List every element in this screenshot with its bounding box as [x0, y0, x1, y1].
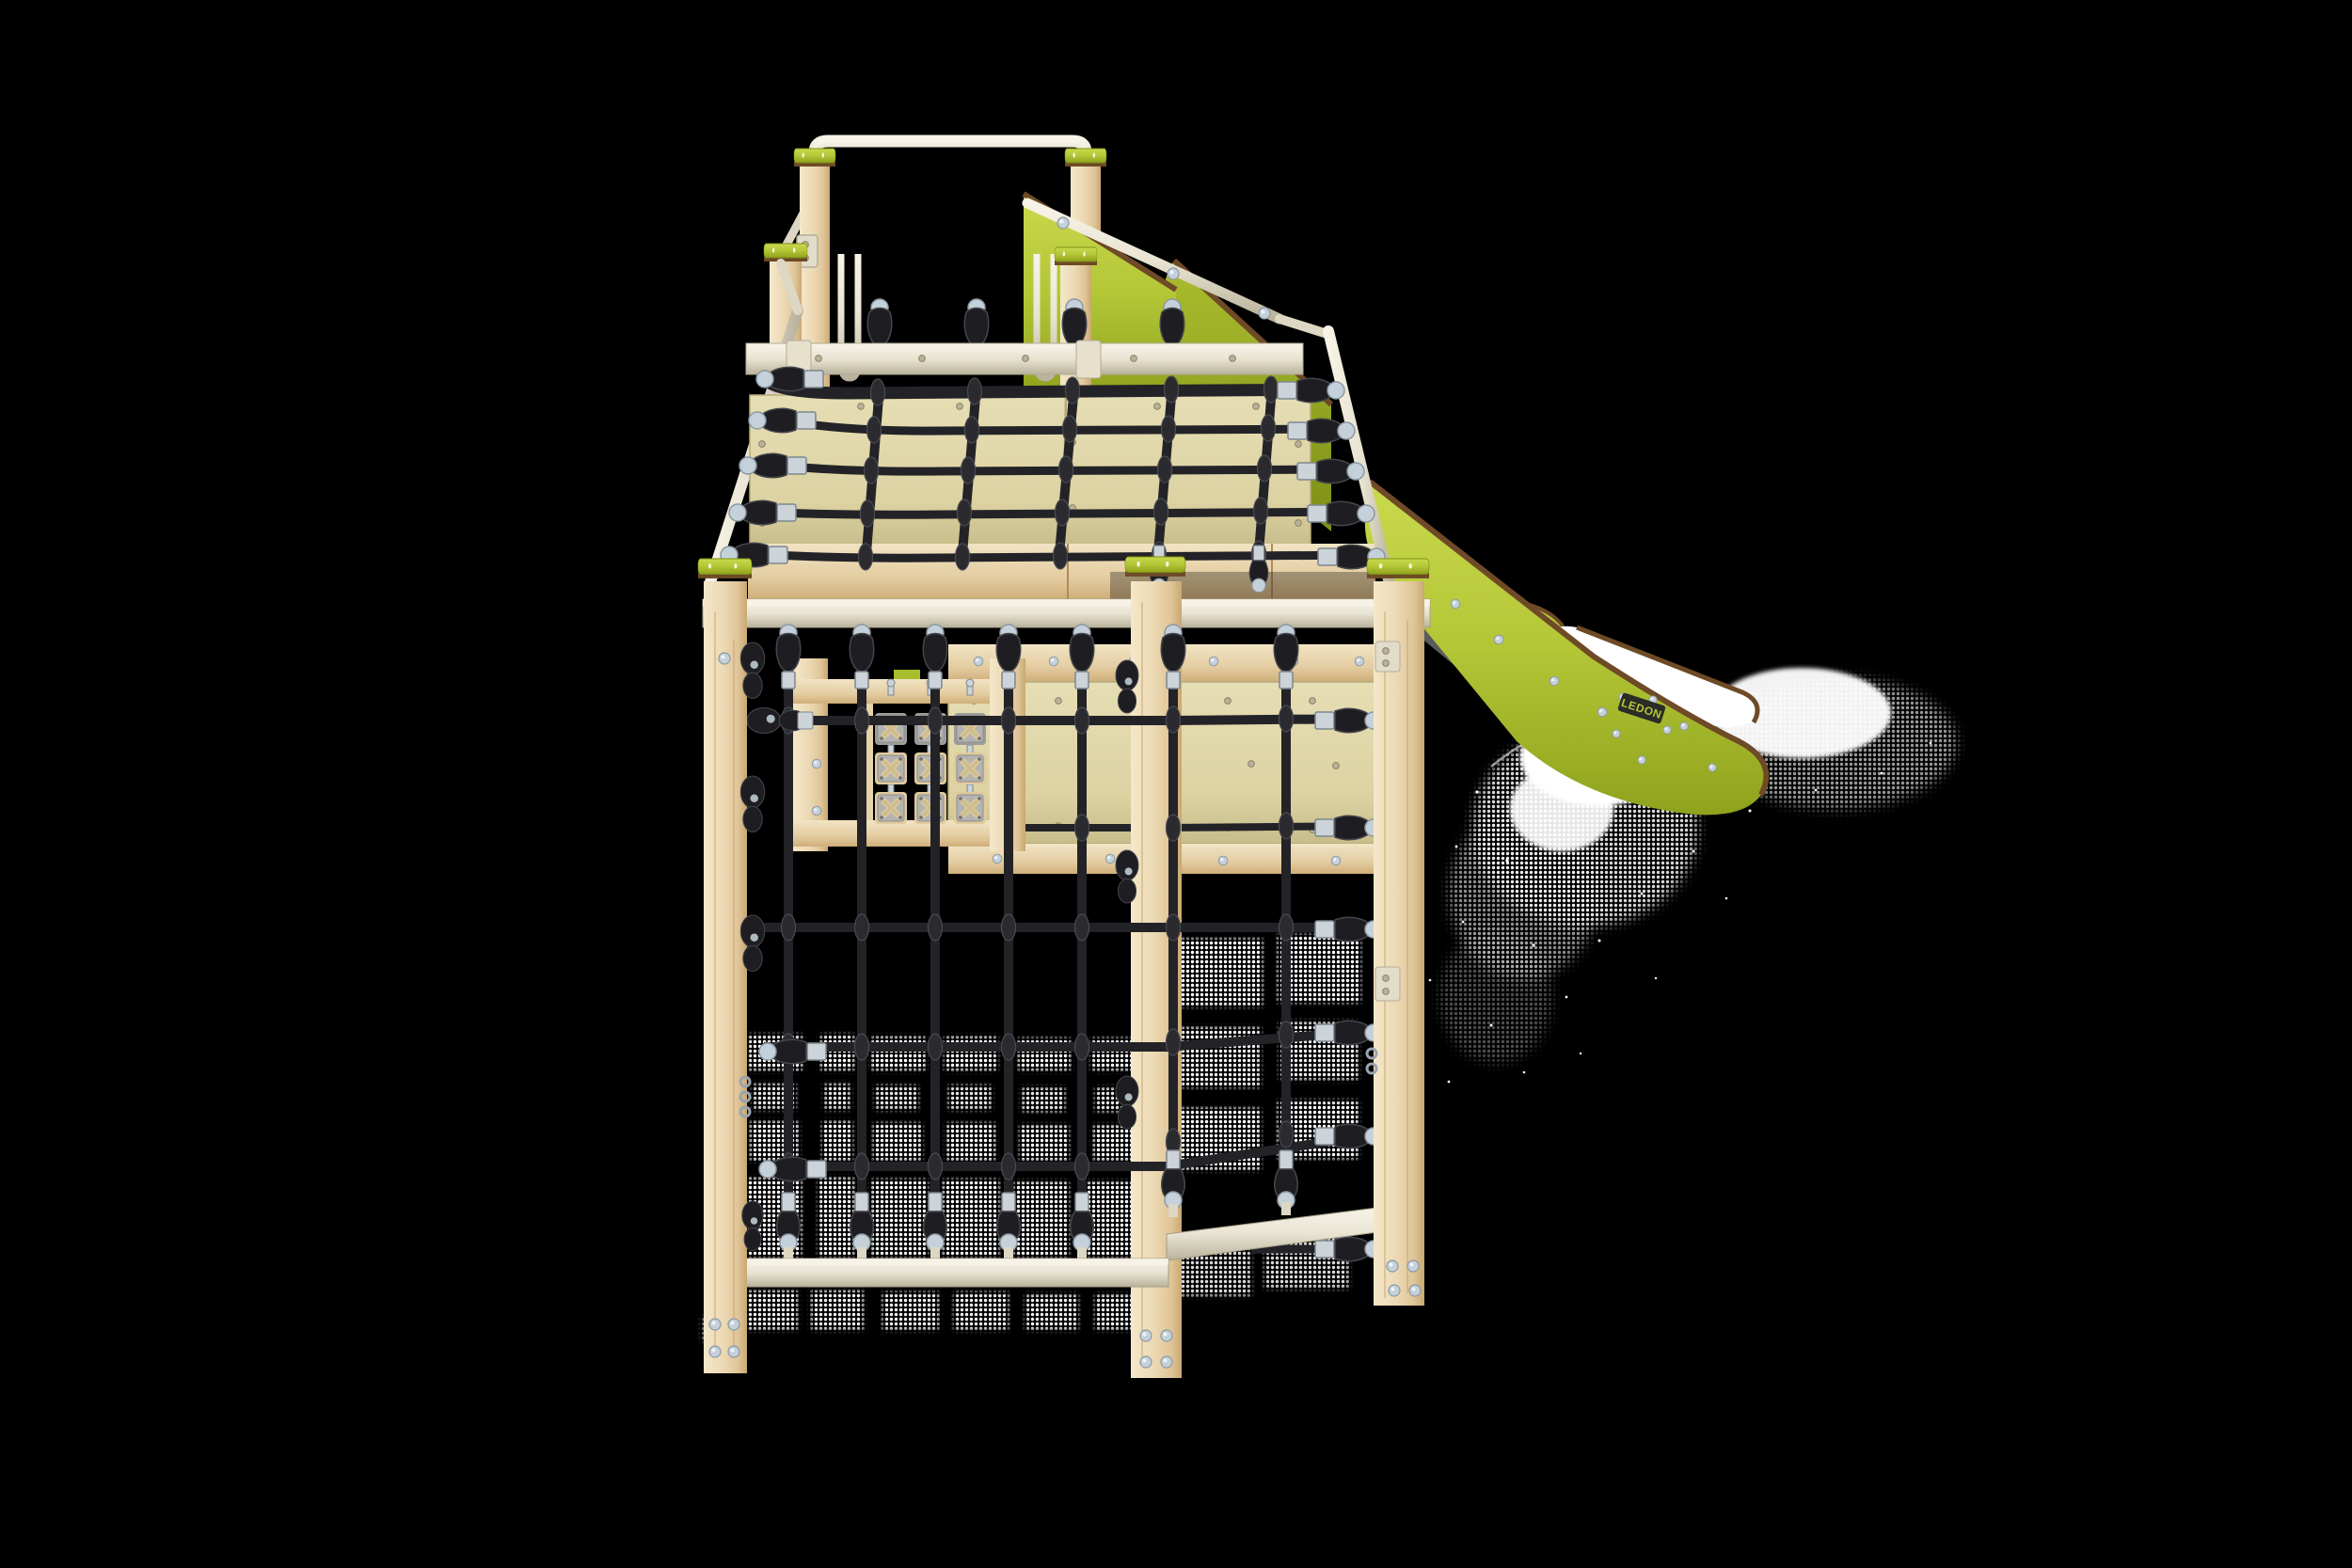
platform-wall: [721, 299, 1392, 599]
post-cap: [1125, 557, 1185, 577]
playground-structure-render: LEDON: [0, 0, 2352, 1568]
post-cap: [1065, 149, 1106, 166]
post-cap: [764, 244, 807, 261]
left-row-tensioner: [759, 1039, 826, 1063]
post-cap: [1367, 559, 1429, 578]
post-cap: [1055, 247, 1097, 265]
product-render-canvas: LEDON: [0, 0, 2352, 1568]
slide-support-post: [1367, 559, 1429, 1306]
post-cap: [698, 559, 752, 578]
left-row-tensioner: [759, 1157, 826, 1180]
post-cap: [794, 149, 835, 166]
